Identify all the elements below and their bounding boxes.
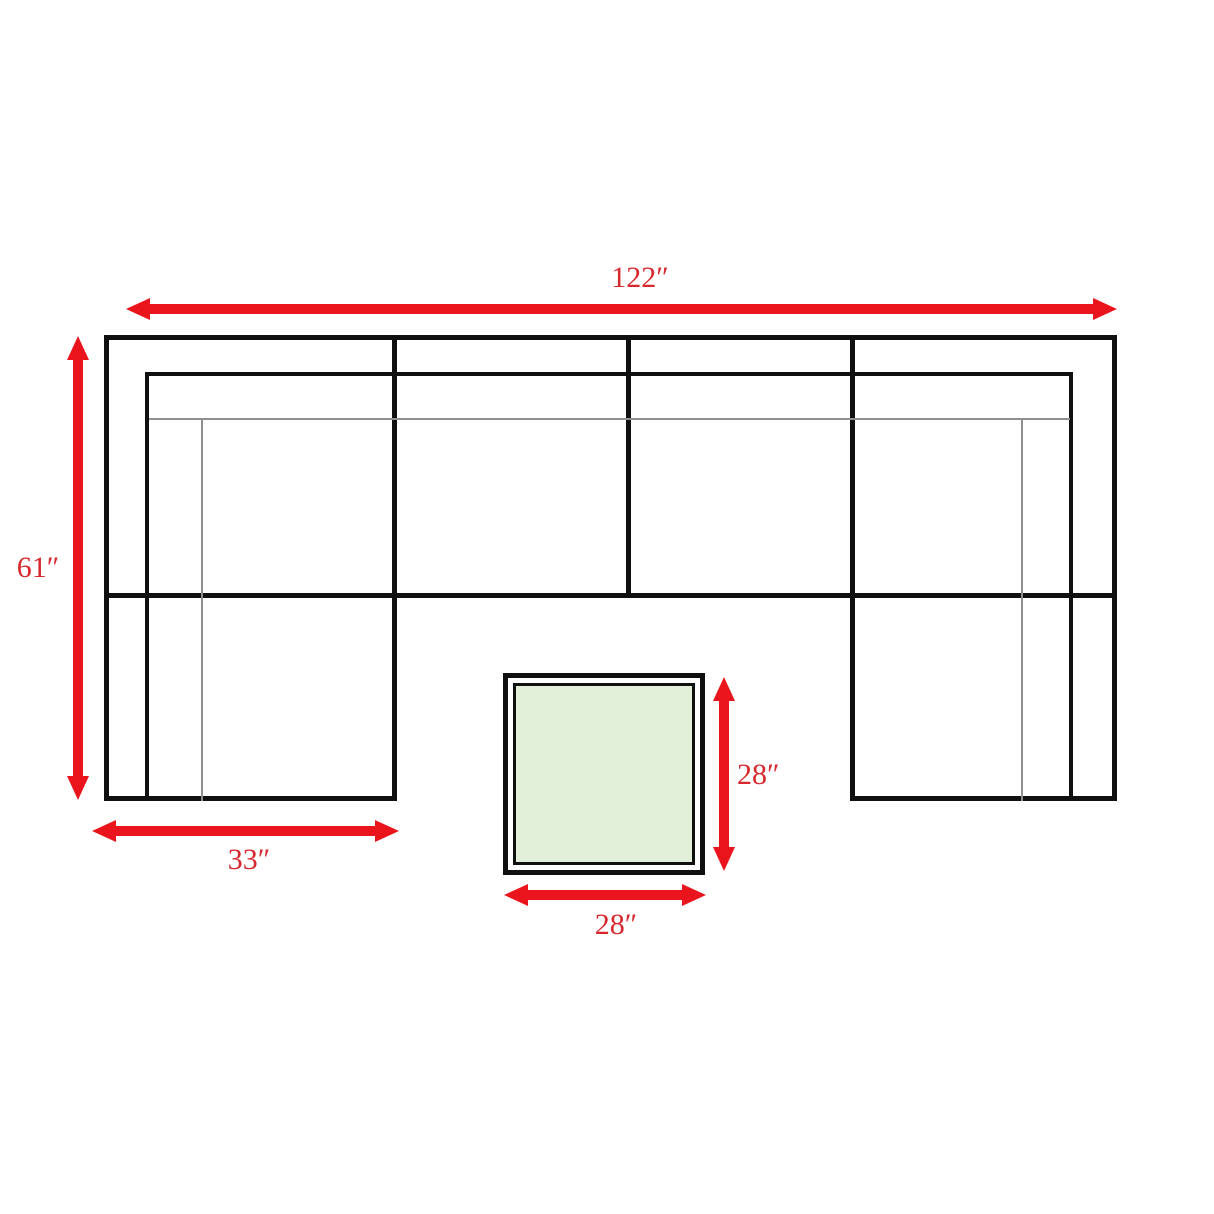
cushion-front-thin-line xyxy=(149,418,1070,420)
arrow-bar xyxy=(719,701,729,847)
table-depth-label: 28″ xyxy=(737,760,780,790)
left-armrest-inner-line xyxy=(145,372,149,801)
sofa-outer-top-line xyxy=(104,335,1117,340)
total-depth-arrow xyxy=(67,336,89,800)
arrow-bar xyxy=(73,360,83,776)
total-depth-label: 61″ xyxy=(12,553,64,583)
left-chaise-divider-line xyxy=(392,335,397,801)
sofa-outer-right-line xyxy=(1112,335,1117,801)
arrowhead-left-icon xyxy=(92,820,116,842)
sofa-seat-front-line xyxy=(104,593,1117,598)
right-chaise-divider-line xyxy=(850,335,855,801)
right-chaise-bottom-line xyxy=(850,796,1117,801)
arrow-bar xyxy=(116,826,375,836)
arrow-bar xyxy=(528,890,682,900)
table-width-label: 28″ xyxy=(568,910,664,940)
right-armrest-inner-line xyxy=(1069,372,1073,801)
arrowhead-left-icon xyxy=(504,884,528,906)
sofa-outer-left-line xyxy=(104,335,109,801)
arrowhead-up-icon xyxy=(67,336,89,360)
chaise-width-arrow xyxy=(92,820,399,842)
arrow-bar xyxy=(150,304,1093,314)
arrowhead-down-icon xyxy=(67,776,89,800)
arrowhead-up-icon xyxy=(713,677,735,701)
arrowhead-right-icon xyxy=(1093,298,1117,320)
coffee-table-top xyxy=(513,683,695,865)
arrowhead-right-icon xyxy=(682,884,706,906)
table-width-arrow xyxy=(504,884,706,906)
coffee-table xyxy=(503,673,705,875)
right-cushion-thin-line xyxy=(1021,418,1023,801)
arrowhead-right-icon xyxy=(375,820,399,842)
arrowhead-left-icon xyxy=(126,298,150,320)
total-width-arrow xyxy=(126,298,1117,320)
sofa-dimension-diagram: 122″ 61″ 33″ 28″ 28″ xyxy=(0,0,1214,1214)
chaise-width-label: 33″ xyxy=(201,845,297,875)
backrest-inner-line xyxy=(145,372,1073,376)
arrowhead-down-icon xyxy=(713,847,735,871)
table-depth-arrow xyxy=(713,677,735,871)
left-cushion-thin-line xyxy=(201,418,203,801)
total-width-label: 122″ xyxy=(580,263,700,293)
